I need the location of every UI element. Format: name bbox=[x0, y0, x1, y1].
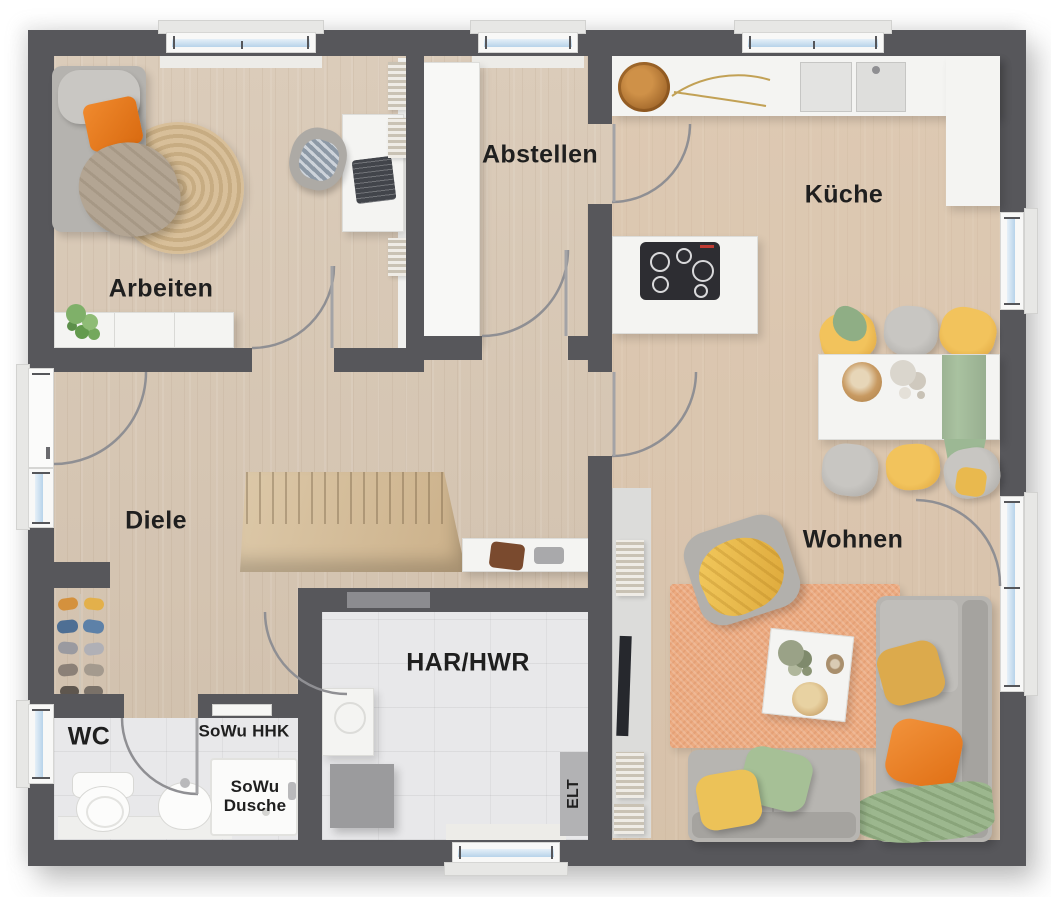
room-label-abstellen: Abstellen bbox=[482, 141, 598, 170]
book-stack bbox=[616, 540, 644, 596]
burner bbox=[692, 260, 714, 282]
bidet bbox=[158, 782, 212, 830]
storage-cabinet bbox=[420, 62, 480, 342]
window-har bbox=[452, 842, 560, 863]
staircase bbox=[240, 472, 466, 572]
kitchen-counter-corner bbox=[946, 56, 1000, 206]
stair-treads bbox=[246, 472, 452, 524]
shoe bbox=[83, 597, 104, 611]
yellow-pillow bbox=[694, 767, 765, 833]
burner bbox=[652, 276, 669, 293]
room-label-diele: Diele bbox=[125, 507, 187, 536]
hall-shelf bbox=[462, 538, 590, 572]
shoe bbox=[83, 663, 104, 677]
har-door-leaf bbox=[347, 592, 430, 608]
table-plant bbox=[778, 640, 804, 666]
room-label-elt: ELT bbox=[565, 779, 583, 809]
entrance-sidelight bbox=[28, 468, 54, 528]
book-stack bbox=[614, 804, 644, 834]
window-arbeiten bbox=[166, 32, 316, 53]
utility-box bbox=[330, 764, 394, 828]
plant bbox=[66, 304, 86, 324]
window-sill bbox=[1024, 208, 1038, 314]
window-inner-sill bbox=[472, 56, 584, 68]
fruit-bowl bbox=[618, 62, 670, 112]
decor-bowl bbox=[792, 682, 828, 716]
window-inner-sill bbox=[160, 56, 322, 68]
cooktop-controls bbox=[700, 245, 714, 248]
window-kueche bbox=[742, 32, 884, 53]
book-stack bbox=[388, 238, 406, 276]
book-stack bbox=[616, 752, 644, 798]
room-label-wc: WC bbox=[68, 723, 110, 752]
room-label-sowu-hhk: SoWu HHK bbox=[199, 721, 290, 740]
room-label-arbeiten: Arbeiten bbox=[109, 275, 214, 304]
book-stack bbox=[388, 118, 406, 158]
sink bbox=[856, 62, 906, 112]
window-inner-sill bbox=[446, 824, 566, 840]
window-sill bbox=[444, 862, 568, 876]
shoe bbox=[58, 641, 79, 655]
bidet-faucet bbox=[180, 778, 190, 788]
dining-chair-gray bbox=[882, 304, 939, 358]
burner bbox=[676, 248, 692, 264]
room-label-kueche: Küche bbox=[805, 181, 883, 210]
room-label-wohnen: Wohnen bbox=[803, 526, 904, 555]
sink bbox=[800, 62, 852, 112]
washer-door bbox=[334, 702, 366, 734]
table-bowl bbox=[842, 362, 882, 402]
floor-plan: Arbeiten Abstellen Küche Diele Wohnen WC… bbox=[0, 0, 1051, 897]
burner bbox=[650, 252, 670, 272]
coat-rack-pole bbox=[79, 594, 81, 694]
bag bbox=[489, 541, 526, 571]
faucet bbox=[872, 66, 880, 74]
table-runner bbox=[942, 355, 986, 439]
window-wc bbox=[28, 704, 54, 784]
book-stack bbox=[388, 62, 406, 110]
vase bbox=[826, 654, 844, 674]
terrace-door-wohnen bbox=[1000, 496, 1024, 692]
burner bbox=[694, 284, 708, 298]
laptop bbox=[351, 156, 396, 205]
window-sill bbox=[1024, 492, 1038, 696]
room-label-sowu-dusche: SoWu Dusche bbox=[214, 777, 296, 815]
entrance-door bbox=[28, 368, 54, 468]
window-abstellen bbox=[478, 32, 578, 53]
stool-cushion bbox=[954, 466, 988, 498]
flower-decoration bbox=[890, 360, 916, 386]
room-label-har-hwr: HAR/HWR bbox=[406, 649, 530, 678]
toilet-seat bbox=[86, 796, 124, 828]
window-kueche-right bbox=[1000, 212, 1024, 310]
shelf-items bbox=[534, 547, 564, 564]
towel-radiator bbox=[212, 704, 272, 716]
